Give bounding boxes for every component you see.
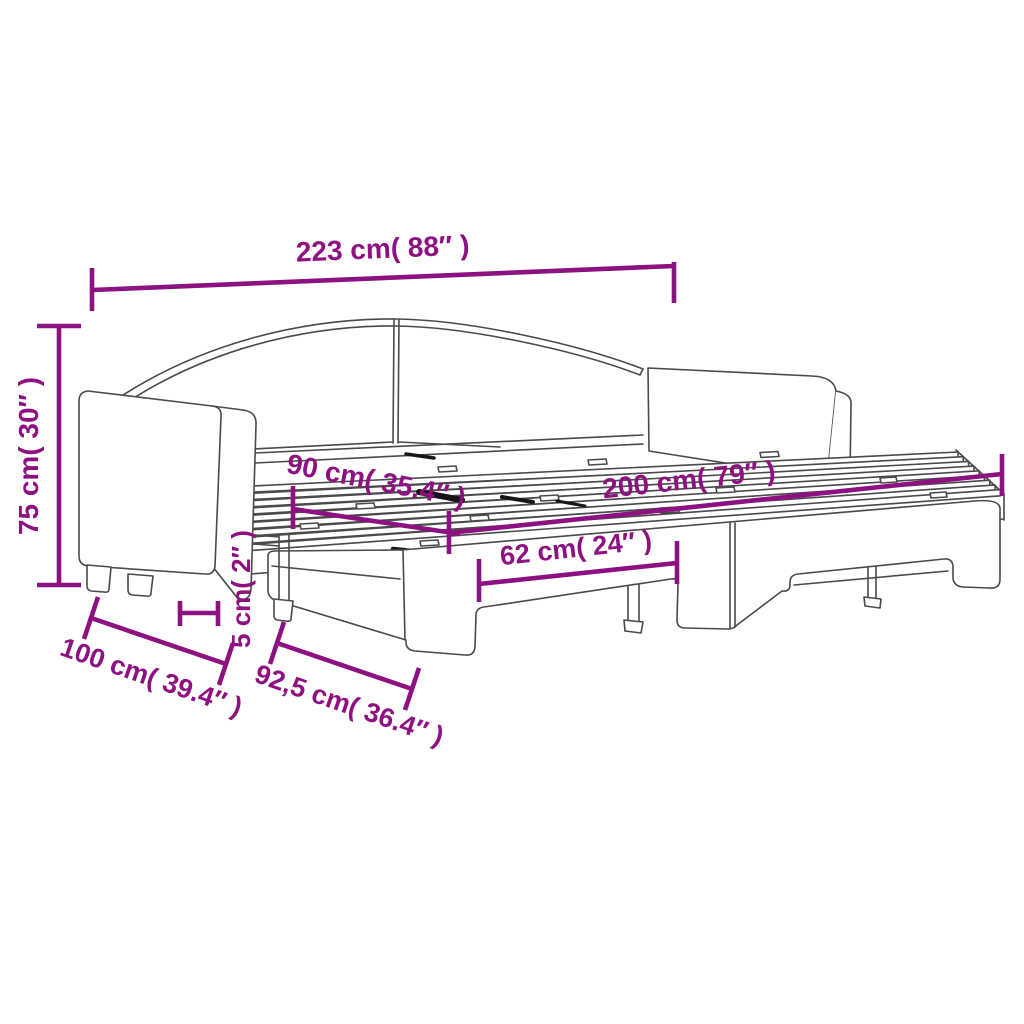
label-overall-depth: 100 cm( 39.4″ ) (57, 632, 246, 722)
dimension-diagram: 223 cm( 88″ ) 75 cm( 30″ ) 90 cm( 35.4″ … (0, 0, 1024, 1024)
dimension-overall-length (92, 262, 674, 311)
diagram-canvas: 223 cm( 88″ ) 75 cm( 30″ ) 90 cm( 35.4″ … (0, 0, 1024, 1024)
label-gap-height: 5 cm( 2″ ) (226, 530, 256, 648)
dimension-gap-height (180, 601, 218, 626)
label-overall-length: 223 cm( 88″ ) (295, 229, 470, 267)
label-overall-height: 75 cm( 30″ ) (13, 377, 44, 535)
